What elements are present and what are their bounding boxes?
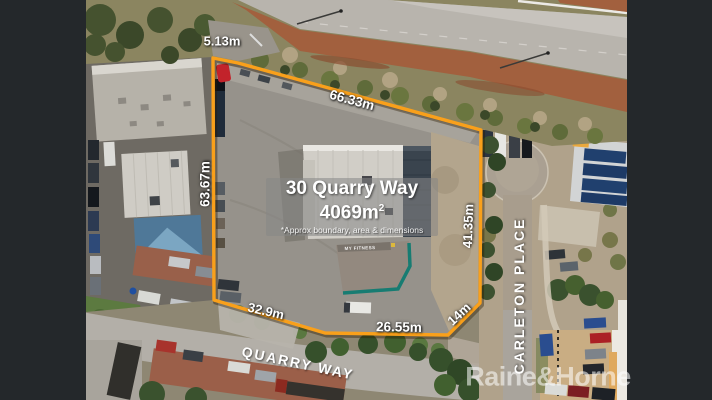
property-area: 4069m2 (320, 199, 385, 223)
blue-bin (130, 288, 137, 295)
white-truck (344, 302, 371, 314)
letterbox-right (627, 0, 712, 400)
property-disclaimer: *Approx boundary, area & dimensions (281, 225, 424, 235)
warehouse-roof (92, 58, 207, 141)
letterbox-left (0, 0, 86, 400)
aerial-listing-image: { "overlay": { "title": "30 Quarry Way",… (0, 0, 712, 400)
property-title: 30 Quarry Way (286, 179, 418, 199)
property-info-panel: 30 Quarry Way 4069m2 *Approx boundary, a… (266, 178, 438, 236)
gym-building (336, 241, 410, 293)
solar-panel-building (570, 136, 627, 207)
